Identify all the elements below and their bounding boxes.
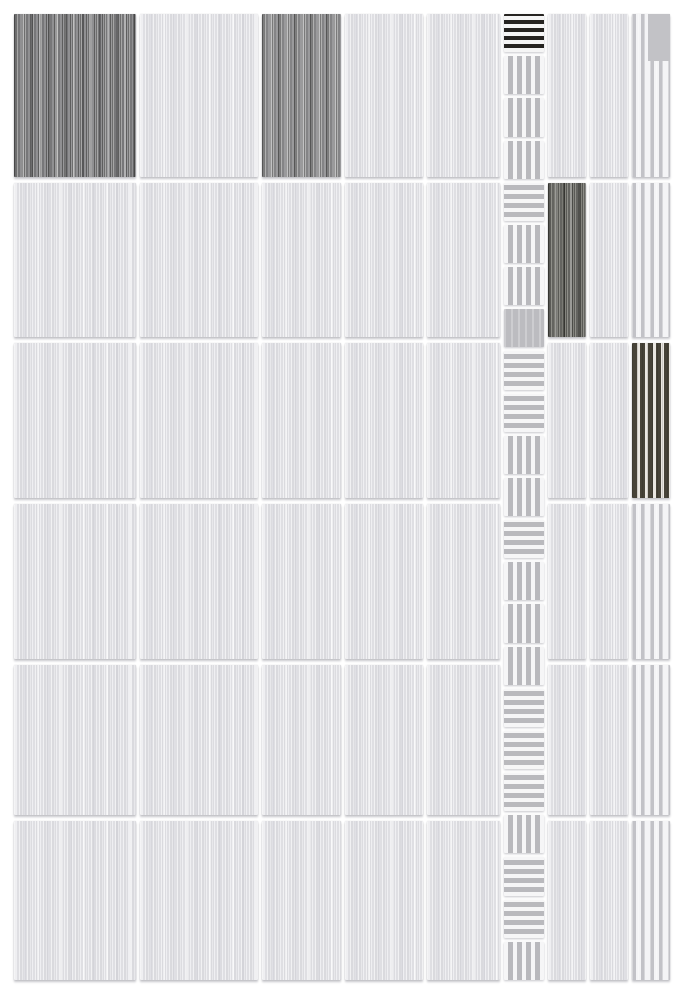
mosaic-square-horizontal-stripes <box>504 183 544 221</box>
tile-r5-c2-light <box>140 665 258 815</box>
tile-column-9 <box>632 14 670 980</box>
tile-r2-c3-light <box>262 183 341 337</box>
mosaic-square-vertical-stripes <box>504 647 544 685</box>
tile-r6-c2-light <box>140 821 258 980</box>
tile-r3-c5-light <box>427 343 500 498</box>
mosaic-square-horizontal-stripes <box>504 857 544 895</box>
tile-r1-c2-light <box>140 14 258 177</box>
tile-column-7 <box>548 14 586 980</box>
mosaic-square-horizontal-stripes <box>504 689 544 727</box>
tile-column-8 <box>590 14 628 980</box>
tile-r4-c1-light <box>14 504 136 659</box>
mosaic-square-horizontal-stripes <box>504 520 544 558</box>
tile-r2-c1-light <box>14 183 136 337</box>
tile-r4-c5-light <box>427 504 500 659</box>
tile-r1-c7-light <box>548 14 586 177</box>
tile-r3-c7-light <box>548 343 586 498</box>
tile-r4-c8-light <box>590 504 628 659</box>
tile-r3-c2-light <box>140 343 258 498</box>
mosaic-square-vertical-stripes <box>504 478 544 516</box>
tile-r1-c8-light <box>590 14 628 177</box>
mosaic-square-plain <box>504 309 544 347</box>
tile-r6-c5-light <box>427 821 500 980</box>
tile-r4-c7-light <box>548 504 586 659</box>
mosaic-square-vertical-stripes <box>504 815 544 853</box>
tile-r1-c5-light <box>427 14 500 177</box>
tile-r6-c3-light <box>262 821 341 980</box>
mosaic-square-vertical-stripes <box>504 56 544 94</box>
mosaic-square-black-stripes <box>504 14 544 52</box>
tile-column-5 <box>427 14 500 980</box>
tile-column-4 <box>345 14 423 980</box>
mosaic-strip-column <box>504 14 544 980</box>
tile-r4-c9-stripeL <box>632 504 670 659</box>
tile-r2-c8-light <box>590 183 628 337</box>
mosaic-square-vertical-stripes <box>504 436 544 474</box>
tile-r1-c3-dark2 <box>262 14 341 177</box>
mosaic-square-horizontal-stripes <box>504 394 544 432</box>
tile-column-1 <box>14 14 136 980</box>
tile-r6-c1-light <box>14 821 136 980</box>
mosaic-square-vertical-stripes <box>504 98 544 136</box>
tile-r5-c3-light <box>262 665 341 815</box>
tile-column-2 <box>140 14 258 980</box>
tile-r6-c9-stripeL <box>632 821 670 980</box>
corner-patch <box>648 14 670 61</box>
tile-r3-c3-light <box>262 343 341 498</box>
mosaic-square-vertical-stripes <box>504 562 544 600</box>
mosaic-square-vertical-stripes <box>504 604 544 642</box>
tile-column-3 <box>262 14 341 980</box>
tile-r3-c4-light <box>345 343 423 498</box>
tile-r3-c8-light <box>590 343 628 498</box>
tile-r2-c9-stripeL <box>632 183 670 337</box>
tile-r1-c1-dark1 <box>14 14 136 177</box>
mosaic-square-vertical-stripes <box>504 225 544 263</box>
tile-r4-c2-light <box>140 504 258 659</box>
tile-r5-c9-stripeL <box>632 665 670 815</box>
mosaic-square-vertical-stripes <box>504 141 544 179</box>
tile-r3-c9-stripeD <box>632 343 670 498</box>
tile-r5-c8-light <box>590 665 628 815</box>
mosaic-square-vertical-stripes <box>504 942 544 980</box>
mosaic-square-horizontal-stripes <box>504 900 544 938</box>
tile-r6-c8-light <box>590 821 628 980</box>
mosaic-square-horizontal-stripes <box>504 731 544 769</box>
tile-r3-c1-light <box>14 343 136 498</box>
tile-r2-c5-light <box>427 183 500 337</box>
tile-sheet <box>14 14 670 980</box>
tile-r5-c4-light <box>345 665 423 815</box>
mosaic-square-horizontal-stripes <box>504 773 544 811</box>
tile-r6-c7-light <box>548 821 586 980</box>
tile-r2-c2-light <box>140 183 258 337</box>
tile-r4-c3-light <box>262 504 341 659</box>
mosaic-square-horizontal-stripes <box>504 351 544 389</box>
tile-r1-c4-light <box>345 14 423 177</box>
tile-r4-c4-light <box>345 504 423 659</box>
tile-r5-c5-light <box>427 665 500 815</box>
tile-r2-c7-dark3 <box>548 183 586 337</box>
tile-r6-c4-light <box>345 821 423 980</box>
tile-r5-c7-light <box>548 665 586 815</box>
tile-r2-c4-light <box>345 183 423 337</box>
tile-r1-c9-stripeL <box>632 14 670 177</box>
tile-r5-c1-light <box>14 665 136 815</box>
mosaic-square-vertical-stripes <box>504 267 544 305</box>
